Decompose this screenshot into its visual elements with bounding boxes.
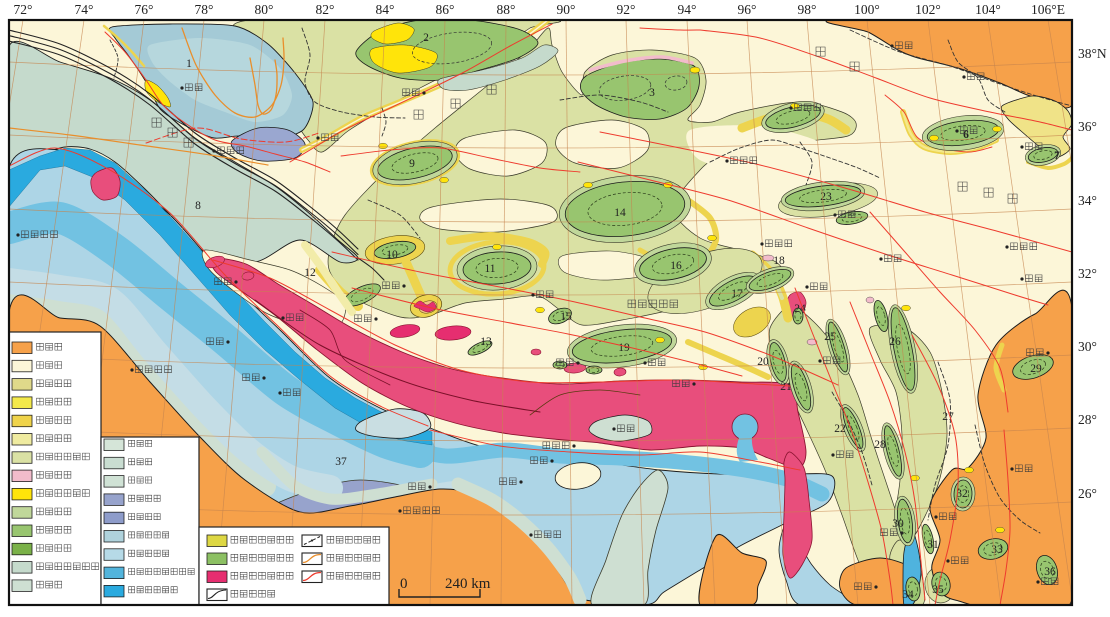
svg-text:29: 29 xyxy=(1030,363,1042,375)
svg-text:18: 18 xyxy=(773,255,785,267)
svg-text:94°: 94° xyxy=(678,2,697,17)
svg-text:3: 3 xyxy=(649,87,655,99)
svg-text:28°: 28° xyxy=(1078,412,1097,427)
svg-text:38°N: 38°N xyxy=(1078,46,1107,61)
svg-text:36: 36 xyxy=(1044,566,1056,578)
svg-text:74°: 74° xyxy=(75,2,94,17)
svg-text:240 km: 240 km xyxy=(445,576,491,592)
svg-text:96°: 96° xyxy=(738,2,757,17)
svg-text:88°: 88° xyxy=(497,2,516,17)
svg-text:0: 0 xyxy=(400,576,408,592)
svg-text:102°: 102° xyxy=(915,2,941,17)
svg-text:1: 1 xyxy=(186,58,192,70)
svg-text:90°: 90° xyxy=(557,2,576,17)
svg-text:13: 13 xyxy=(480,336,492,348)
svg-text:16: 16 xyxy=(670,260,682,272)
svg-text:37: 37 xyxy=(335,456,347,468)
svg-text:15: 15 xyxy=(560,311,572,323)
svg-text:11: 11 xyxy=(484,263,495,275)
svg-text:33: 33 xyxy=(991,544,1003,556)
svg-text:19: 19 xyxy=(618,342,630,354)
svg-text:30: 30 xyxy=(892,518,904,530)
svg-text:10: 10 xyxy=(386,249,398,261)
svg-text:17: 17 xyxy=(731,288,743,300)
svg-text:9: 9 xyxy=(409,158,415,170)
svg-text:80°: 80° xyxy=(255,2,274,17)
svg-text:8: 8 xyxy=(195,200,201,212)
svg-text:84°: 84° xyxy=(376,2,395,17)
svg-text:26: 26 xyxy=(889,336,901,348)
svg-text:32°: 32° xyxy=(1078,266,1097,281)
svg-text:22: 22 xyxy=(834,423,846,435)
svg-text:92°: 92° xyxy=(617,2,636,17)
svg-text:36°: 36° xyxy=(1078,119,1097,134)
svg-text:106°E: 106°E xyxy=(1031,2,1065,17)
svg-text:34: 34 xyxy=(902,589,914,601)
svg-text:100°: 100° xyxy=(854,2,880,17)
svg-text:34°: 34° xyxy=(1078,193,1097,208)
svg-text:26°: 26° xyxy=(1078,486,1097,501)
svg-text:78°: 78° xyxy=(195,2,214,17)
svg-text:12: 12 xyxy=(304,267,316,279)
svg-text:14: 14 xyxy=(614,207,626,219)
svg-text:98°: 98° xyxy=(798,2,817,17)
svg-text:20: 20 xyxy=(757,356,769,368)
svg-text:2: 2 xyxy=(423,32,429,44)
svg-text:31: 31 xyxy=(927,539,939,551)
svg-text:82°: 82° xyxy=(316,2,335,17)
svg-text:7: 7 xyxy=(1054,150,1060,162)
svg-text:30°: 30° xyxy=(1078,339,1097,354)
svg-text:28: 28 xyxy=(874,439,886,451)
svg-text:86°: 86° xyxy=(436,2,455,17)
svg-text:104°: 104° xyxy=(975,2,1001,17)
svg-text:21: 21 xyxy=(780,381,792,393)
svg-text:76°: 76° xyxy=(135,2,154,17)
svg-text:27: 27 xyxy=(942,411,954,423)
svg-text:72°: 72° xyxy=(14,2,33,17)
